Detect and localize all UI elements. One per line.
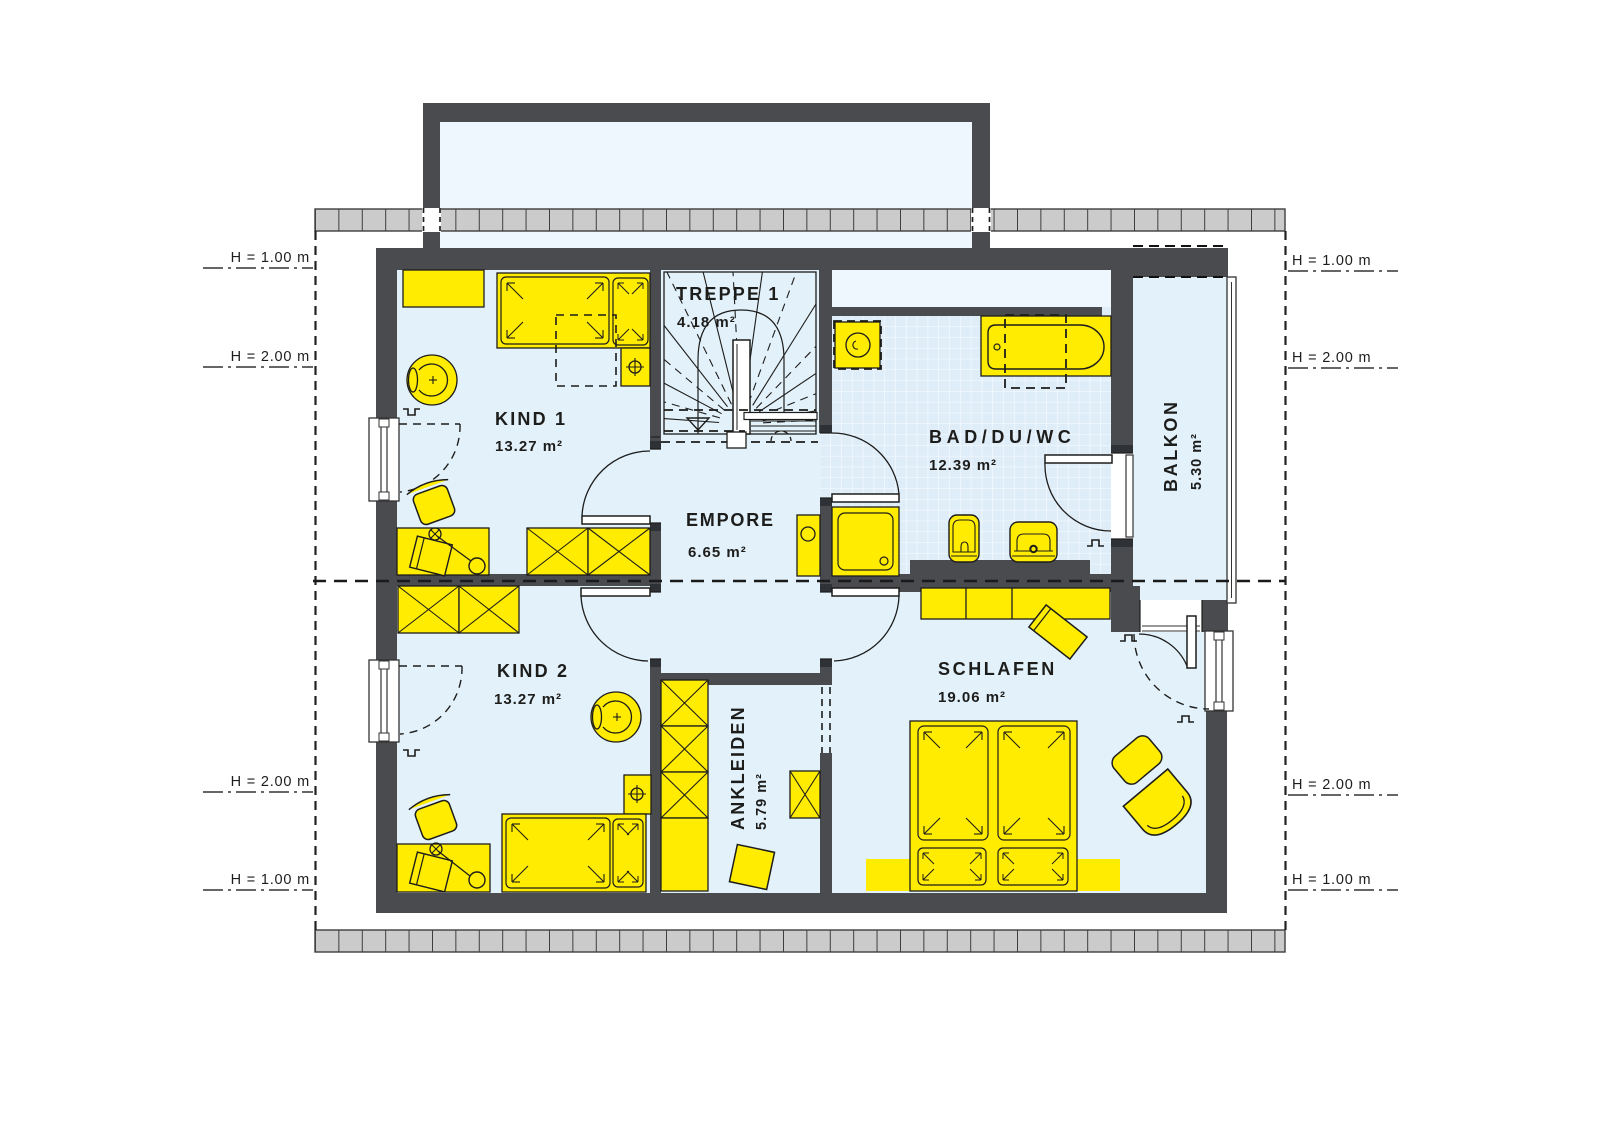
svg-text:5.30 m²: 5.30 m² (1189, 433, 1205, 490)
svg-text:H = 2.00 m: H = 2.00 m (1292, 777, 1371, 793)
svg-text:KIND 2: KIND 2 (497, 661, 569, 681)
svg-text:13.27 m²: 13.27 m² (494, 691, 562, 708)
svg-text:H = 1.00 m: H = 1.00 m (231, 250, 310, 266)
svg-text:EMPORE: EMPORE (686, 510, 775, 530)
svg-text:13.27 m²: 13.27 m² (495, 438, 563, 455)
svg-text:H = 1.00 m: H = 1.00 m (1292, 253, 1371, 269)
svg-text:TREPPE 1: TREPPE 1 (676, 284, 781, 304)
svg-text:SCHLAFEN: SCHLAFEN (938, 659, 1057, 679)
svg-text:19.06 m²: 19.06 m² (938, 689, 1006, 706)
svg-text:BALKON: BALKON (1161, 399, 1181, 492)
svg-text:H = 1.00 m: H = 1.00 m (1292, 872, 1371, 888)
svg-text:H = 2.00 m: H = 2.00 m (1292, 350, 1371, 366)
svg-text:H = 2.00 m: H = 2.00 m (231, 349, 310, 365)
svg-text:12.39 m²: 12.39 m² (929, 457, 997, 474)
svg-text:5.79 m²: 5.79 m² (754, 773, 770, 830)
svg-text:BAD/DU/WC: BAD/DU/WC (929, 427, 1075, 447)
svg-text:6.65 m²: 6.65 m² (688, 544, 747, 561)
svg-text:ANKLEIDEN: ANKLEIDEN (728, 705, 748, 830)
svg-text:H = 2.00 m: H = 2.00 m (231, 774, 310, 790)
svg-text:H = 1.00 m: H = 1.00 m (231, 872, 310, 888)
svg-text:KIND 1: KIND 1 (495, 409, 567, 429)
svg-text:4.18 m²: 4.18 m² (677, 314, 736, 331)
